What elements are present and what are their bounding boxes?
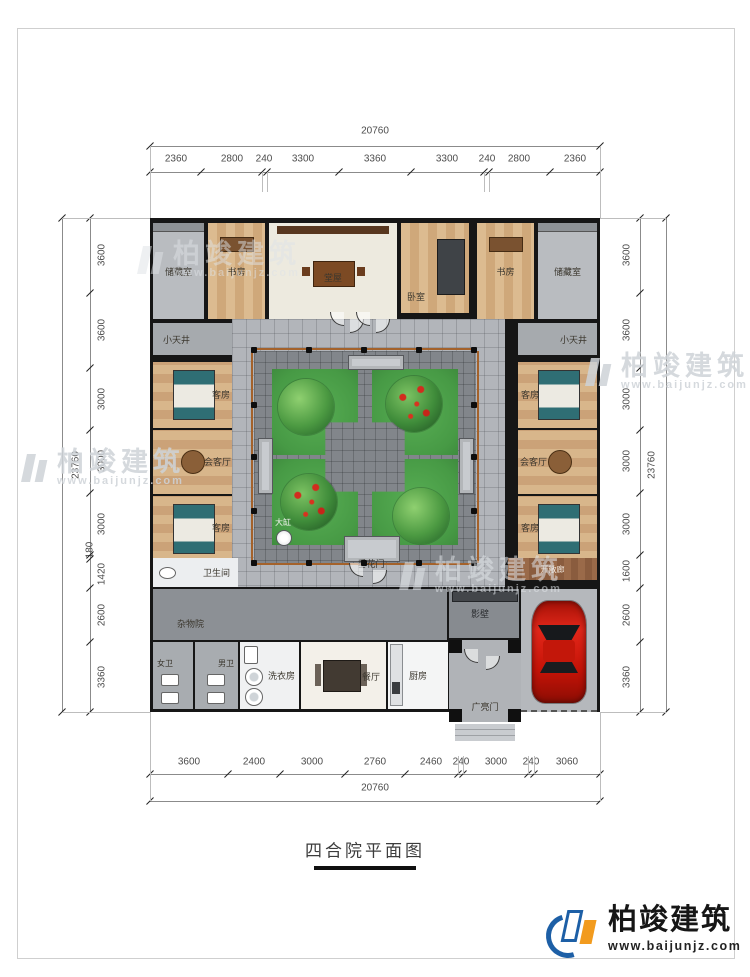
room-reception-west: 会客厅 bbox=[153, 430, 232, 494]
dim-label: 3600 bbox=[97, 244, 108, 266]
dim-top-total-line bbox=[150, 146, 600, 147]
dim-label: 2600 bbox=[622, 604, 633, 626]
dim-label: 3000 bbox=[622, 388, 633, 410]
dim-right-total: 23760 bbox=[647, 451, 658, 479]
dim-top-segment-line bbox=[150, 172, 600, 173]
room-chore-yard: 杂物院 bbox=[153, 589, 447, 640]
room-guest-nw: 客房 bbox=[153, 362, 232, 428]
title-underline bbox=[314, 866, 416, 870]
brand-name: 柏竣建筑 bbox=[608, 906, 741, 935]
dim-label: 3000 bbox=[301, 757, 323, 768]
dim-label: 240 bbox=[479, 154, 496, 165]
dim-label: 2760 bbox=[364, 757, 386, 768]
room-mens-wc: 男卫 bbox=[195, 642, 238, 709]
tree-flowering bbox=[386, 376, 442, 432]
dim-label: 3600 bbox=[97, 319, 108, 341]
dim-label: 3300 bbox=[436, 154, 458, 165]
dim-bottom-total-line bbox=[150, 801, 600, 802]
room-study-nw: 书房 bbox=[208, 223, 265, 319]
room-study-ne: 书房 bbox=[477, 223, 534, 319]
dim-label: 3000 bbox=[97, 388, 108, 410]
dim-label: 3360 bbox=[364, 154, 386, 165]
brand-logo-icon bbox=[544, 906, 602, 960]
dim-label: 1600 bbox=[622, 560, 633, 582]
dim-label: 3000 bbox=[97, 450, 108, 472]
dim-label: 3360 bbox=[97, 666, 108, 688]
dim-label: 240 bbox=[453, 757, 470, 768]
dim-label: 3360 bbox=[622, 666, 633, 688]
room-kitchen: 厨房 bbox=[388, 642, 448, 709]
dim-label: 240 bbox=[256, 154, 273, 165]
room-guest-sw: 客房 bbox=[153, 496, 232, 560]
room-storage-ne: 储藏室 bbox=[538, 223, 597, 319]
dim-label: 2800 bbox=[221, 154, 243, 165]
dim-label: 2360 bbox=[564, 154, 586, 165]
room-grand-gate: 广亮门 bbox=[449, 640, 521, 722]
dim-right-total-line bbox=[666, 218, 667, 712]
garage-bay bbox=[521, 589, 597, 712]
dim-bottom-total: 20760 bbox=[361, 783, 389, 794]
dim-label: 2460 bbox=[420, 757, 442, 768]
dim-label: 3600 bbox=[178, 757, 200, 768]
dim-label: 3000 bbox=[97, 513, 108, 535]
dim-top-total: 20760 bbox=[361, 126, 389, 137]
dim-left-total-line bbox=[62, 218, 63, 712]
room-guest-se: 客房 bbox=[518, 496, 597, 560]
dim-left-total: 23760 bbox=[71, 451, 82, 479]
dim-label: 3000 bbox=[622, 513, 633, 535]
dim-label: 3060 bbox=[556, 757, 578, 768]
room-dining: 餐厅 bbox=[301, 642, 386, 709]
tree bbox=[278, 379, 334, 435]
room-reception-east: 会客厅 bbox=[518, 430, 597, 494]
bench-north bbox=[348, 355, 404, 370]
dim-label: 2400 bbox=[243, 757, 265, 768]
gate-steps bbox=[455, 724, 515, 741]
room-womens-wc: 女卫 bbox=[153, 642, 193, 709]
gate-forecourt: 影壁 bbox=[449, 589, 519, 638]
car bbox=[532, 601, 586, 703]
drawing-title: 四合院平面图 bbox=[305, 837, 425, 862]
dim-label: 3000 bbox=[485, 757, 507, 768]
room-bathroom: 卫生间 bbox=[153, 558, 238, 587]
page: { "page": { "title_text": "四合院平面图" }, "b… bbox=[0, 0, 750, 977]
tree bbox=[393, 488, 449, 544]
dim-label: 2600 bbox=[97, 604, 108, 626]
dim-label: 240 bbox=[523, 757, 540, 768]
brand-logo: 柏竣建筑 www.baijunjz.com bbox=[544, 906, 741, 960]
bench-east bbox=[459, 438, 474, 494]
big-vat bbox=[276, 530, 292, 546]
dim-label: 2800 bbox=[508, 154, 530, 165]
dim-label: 3300 bbox=[292, 154, 314, 165]
room-bedroom: 卧室 bbox=[401, 223, 469, 313]
dim-label: 3600 bbox=[622, 244, 633, 266]
bench-west bbox=[258, 438, 273, 494]
dim-label: 2360 bbox=[165, 154, 187, 165]
room-storage-nw: 储藏室 bbox=[153, 223, 204, 319]
room-guest-ne: 客房 bbox=[518, 362, 597, 428]
room-open-corridor: 开敞廊 bbox=[508, 558, 597, 580]
room-light-well-east: 小天井 bbox=[518, 323, 597, 355]
dim-label: 3000 bbox=[622, 450, 633, 472]
dim-label: 1420 bbox=[97, 563, 108, 585]
dim-label: 3600 bbox=[622, 319, 633, 341]
room-laundry: 洗衣房 bbox=[240, 642, 299, 709]
room-light-well-west: 小天井 bbox=[153, 323, 232, 355]
brand-url: www.baijunjz.com bbox=[608, 939, 741, 953]
floor-plan: 储藏室 书房 堂屋 卧室 书房 储藏室 小天井 小天井 bbox=[150, 218, 600, 712]
veranda-rail bbox=[477, 351, 479, 563]
